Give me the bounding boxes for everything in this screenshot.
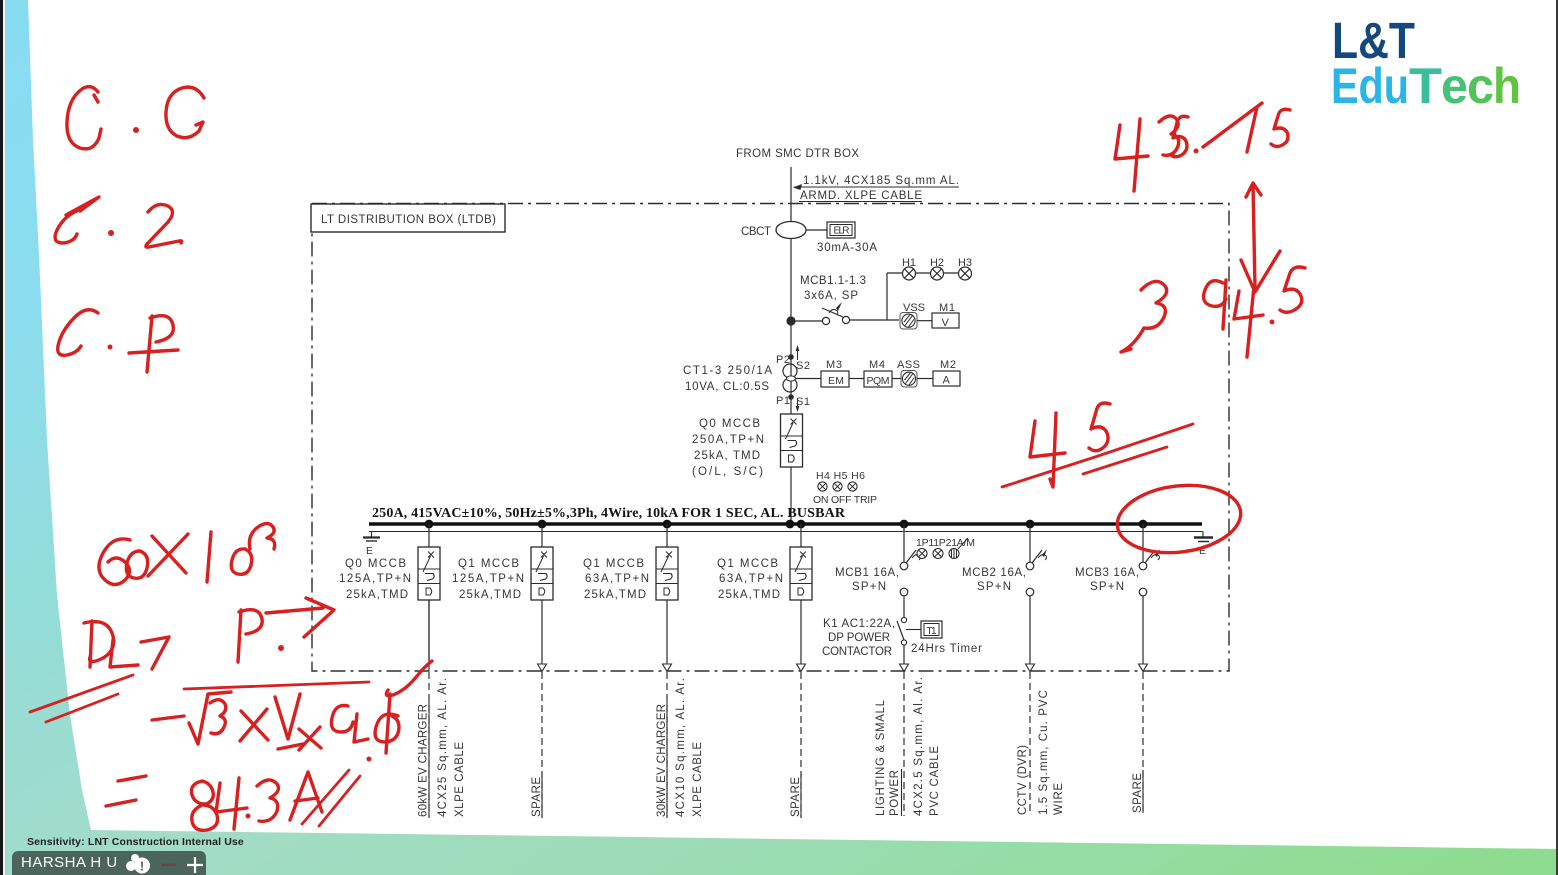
svg-text:H2: H2: [930, 257, 944, 269]
svg-text:DP POWER: DP POWER: [828, 632, 890, 644]
svg-text:!: !: [140, 859, 144, 874]
svg-text:4CX25 Sq.mm, AL. Ar.: 4CX25 Sq.mm, AL. Ar.: [437, 678, 449, 817]
svg-text:SP+N: SP+N: [852, 581, 886, 593]
svg-text:SPARE: SPARE: [1132, 773, 1144, 813]
svg-text:30kW EV CHARGER: 30kW EV CHARGER: [656, 704, 668, 817]
svg-text:P1: P1: [776, 395, 790, 407]
svg-text:25kA,TMD: 25kA,TMD: [584, 589, 646, 601]
svg-text:S2: S2: [796, 360, 810, 372]
svg-text:LT DISTRIBUTION BOX (LTDB): LT DISTRIBUTION BOX (LTDB): [321, 214, 496, 226]
svg-text:M4: M4: [869, 359, 885, 371]
svg-text:30mA-30A: 30mA-30A: [817, 242, 877, 254]
svg-text:Q1 MCCB: Q1 MCCB: [583, 558, 644, 570]
svg-text:250A, 415VAC±10%, 50Hz±5%,3Ph,: 250A, 415VAC±10%, 50Hz±5%,3Ph, 4Wire, 10…: [372, 506, 846, 521]
svg-text:25kA,TMD: 25kA,TMD: [459, 589, 521, 601]
svg-text:125A,TP+N: 125A,TP+N: [339, 573, 411, 585]
svg-text:4CX2.5 Sq.mm, Al. Ar.: 4CX2.5 Sq.mm, Al. Ar.: [913, 677, 925, 816]
svg-text:SPARE: SPARE: [790, 777, 802, 817]
svg-text:SPARE: SPARE: [531, 777, 543, 817]
svg-text:24Hrs Timer: 24Hrs Timer: [911, 643, 982, 655]
svg-text:SP+N: SP+N: [1090, 581, 1124, 593]
svg-text:Q0 MCCB: Q0 MCCB: [345, 558, 406, 570]
svg-text:POWER: POWER: [889, 770, 901, 816]
svg-text:MCB1.1-1.3: MCB1.1-1.3: [800, 275, 866, 287]
svg-text:XLPE CABLE: XLPE CABLE: [692, 742, 704, 817]
svg-text:A: A: [943, 375, 951, 387]
svg-text:E: E: [366, 545, 373, 557]
svg-text:ELR: ELR: [834, 226, 850, 237]
svg-text:4CX10 Sq.mm, AL. Ar.: 4CX10 Sq.mm, AL. Ar.: [675, 678, 687, 817]
svg-text:CCTV (DVR): CCTV (DVR): [1017, 745, 1029, 815]
svg-text:MCB1 16A,: MCB1 16A,: [835, 567, 899, 579]
svg-text:25kA, TMD: 25kA, TMD: [694, 450, 760, 462]
svg-text:25kA,TMD: 25kA,TMD: [718, 589, 780, 601]
svg-text:M2: M2: [940, 359, 956, 371]
svg-text:c: c: [1467, 58, 1494, 114]
svg-text:H1: H1: [902, 257, 916, 269]
svg-text:1P11P21A/M: 1P11P21A/M: [916, 537, 975, 549]
svg-text:3x6A, SP: 3x6A, SP: [804, 290, 858, 302]
svg-text:ARMD. XLPE CABLE: ARMD. XLPE CABLE: [800, 190, 922, 202]
svg-text:MCB3 16A,: MCB3 16A,: [1075, 567, 1139, 579]
svg-text:CT1-3 250/1A: CT1-3 250/1A: [683, 365, 772, 377]
svg-text:Q1 MCCB: Q1 MCCB: [458, 558, 519, 570]
svg-text:K1 AC1:22A,: K1 AC1:22A,: [823, 618, 895, 630]
svg-text:M3: M3: [826, 359, 842, 371]
svg-text:H4 H5 H6: H4 H5 H6: [816, 470, 865, 482]
svg-text:CONTACTOR: CONTACTOR: [822, 646, 892, 658]
svg-text:(O/L, S/C): (O/L, S/C): [692, 466, 763, 478]
svg-text:63A,TP+N: 63A,TP+N: [719, 573, 783, 585]
svg-text:FROM SMC DTR BOX: FROM SMC DTR BOX: [736, 148, 859, 160]
svg-text:V: V: [942, 317, 950, 329]
svg-text:1.1kV, 4CX185 Sq.mm AL.: 1.1kV, 4CX185 Sq.mm AL.: [803, 175, 959, 187]
svg-text:XLPE CABLE: XLPE CABLE: [454, 742, 466, 817]
svg-text:Edu: Edu: [1331, 58, 1409, 114]
svg-text:WIRE: WIRE: [1053, 783, 1065, 815]
svg-text:63A,TP+N: 63A,TP+N: [585, 573, 649, 585]
svg-text:Q1 MCCB: Q1 MCCB: [717, 558, 778, 570]
svg-text:125A,TP+N: 125A,TP+N: [452, 573, 524, 585]
svg-text:PQM: PQM: [867, 375, 890, 387]
svg-text:250A,TP+N: 250A,TP+N: [692, 434, 764, 446]
svg-text:ON OFF TRIP: ON OFF TRIP: [813, 494, 877, 506]
svg-text:h: h: [1493, 58, 1521, 114]
svg-text:SP+N: SP+N: [977, 581, 1011, 593]
svg-text:T1: T1: [927, 626, 937, 637]
svg-text:Q0 MCCB: Q0 MCCB: [699, 418, 760, 430]
svg-text:H3: H3: [958, 257, 972, 269]
svg-text:10VA, CL:0.5S: 10VA, CL:0.5S: [685, 381, 769, 393]
svg-text:T: T: [1409, 58, 1442, 114]
svg-text:e: e: [1441, 58, 1468, 114]
svg-text:60kW EV CHARGER: 60kW EV CHARGER: [418, 704, 430, 817]
svg-text:MCB2 16A,: MCB2 16A,: [962, 567, 1026, 579]
svg-text:25kA,TMD: 25kA,TMD: [346, 589, 408, 601]
svg-text:ASS: ASS: [897, 359, 920, 371]
svg-text:LIGHTING & SMALL: LIGHTING & SMALL: [875, 699, 887, 816]
svg-text:M1: M1: [939, 302, 955, 314]
svg-text:CBCT: CBCT: [741, 226, 771, 238]
svg-text:PVC CABLE: PVC CABLE: [929, 746, 941, 816]
svg-text:EM: EM: [828, 375, 844, 387]
svg-text:1.5 Sq.mm, Cu. PVC: 1.5 Sq.mm, Cu. PVC: [1038, 690, 1050, 815]
